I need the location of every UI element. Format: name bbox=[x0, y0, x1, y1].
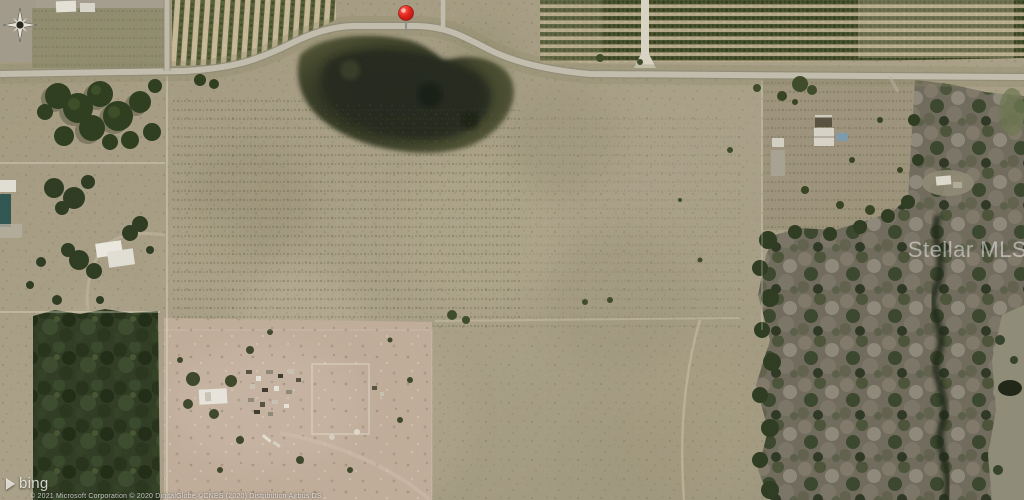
pin-highlight bbox=[401, 8, 406, 13]
bing-logo-text: bing bbox=[19, 475, 49, 492]
bing-logo[interactable]: bing bbox=[6, 475, 49, 492]
pin-head[interactable] bbox=[399, 6, 414, 21]
photo-grain bbox=[0, 0, 1024, 500]
map-copyright: © 2021 Microsoft Corporation © 2020 Digi… bbox=[30, 493, 322, 500]
bing-logo-icon bbox=[6, 478, 15, 490]
satellite-map-canvas[interactable]: Stellar MLS bing © 2021 Microsoft Corpor… bbox=[0, 0, 1024, 500]
satellite-imagery bbox=[0, 0, 1024, 500]
